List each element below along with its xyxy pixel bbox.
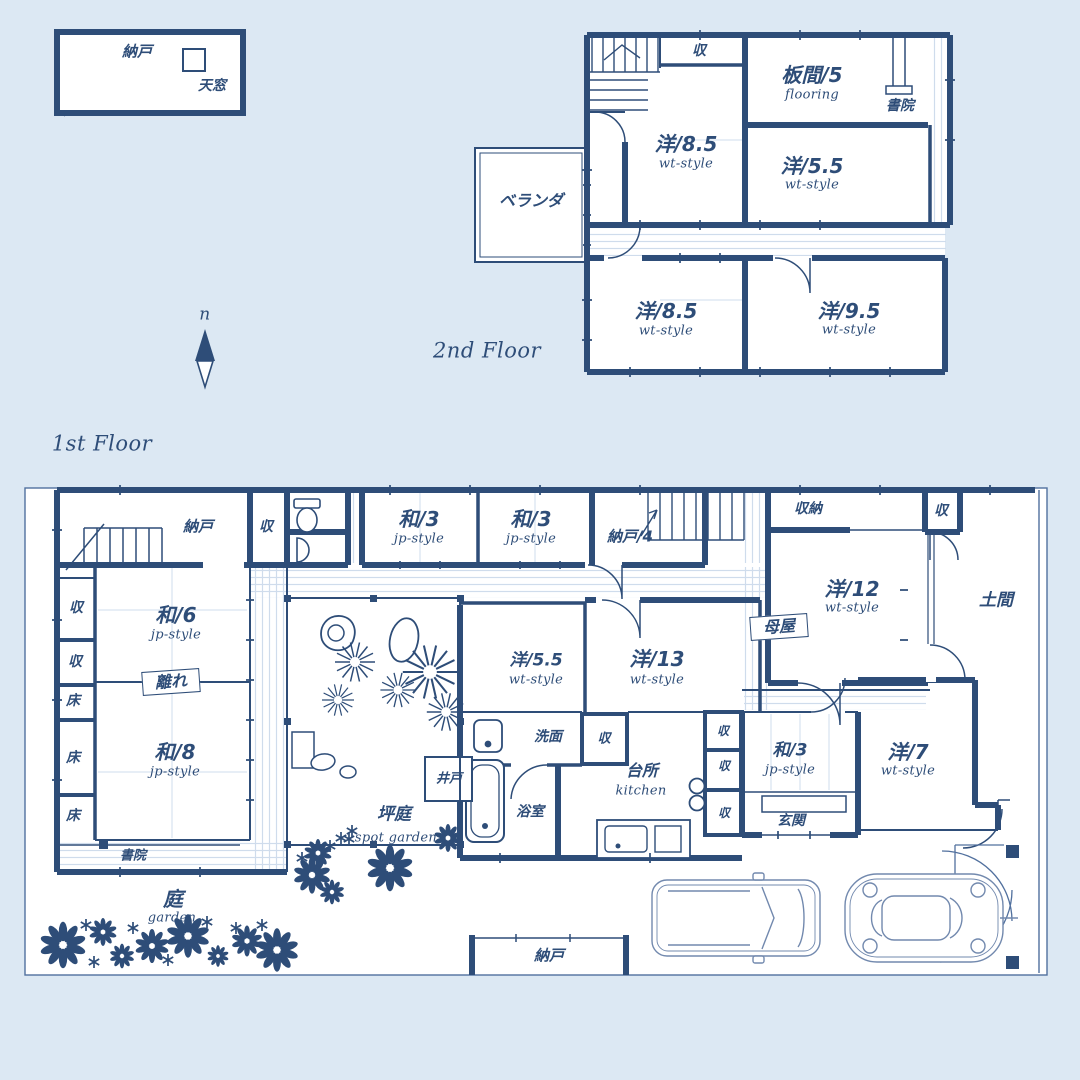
label-1f-wa8: 和/8: [154, 742, 195, 762]
label-2f-yo55: 洋/5.5: [781, 156, 844, 176]
floorplan-page: 納戸 天窓 n 収 板間/5 flooring 書院 洋/8.5 wt-styl…: [0, 0, 1080, 1080]
label-1f-wa3b: 和/3: [510, 509, 551, 529]
label-2f-yo85a: 洋/8.5: [655, 134, 718, 154]
label-1f-closet8: 収: [718, 807, 730, 819]
label-1f-yo12-sub: wt-style: [825, 602, 879, 615]
label-1f-yo7-sub: wt-style: [881, 765, 935, 778]
label-1f-yo55-sub: wt-style: [509, 674, 563, 687]
label-2f-yo85b: 洋/8.5: [635, 301, 698, 321]
label-1f-shoin: 書院: [120, 850, 146, 863]
label-1f-closet1: 収: [259, 520, 273, 534]
label-1f-toko2: 床: [66, 751, 80, 765]
car-van-icon: [652, 873, 820, 963]
washbasin-icon: [474, 720, 502, 752]
label-1f-nando-tl: 納戸: [183, 520, 213, 535]
label-1f-toko1: 床: [66, 694, 80, 708]
label-1f-wa3a: 和/3: [398, 509, 439, 529]
label-1f-genkan: 玄関: [777, 814, 805, 828]
label-1f-wa3a-sub: jp-style: [394, 533, 444, 546]
label-1f-closet2: 収: [934, 504, 948, 518]
floor1-title: 1st Floor: [52, 434, 152, 455]
label-1f-closet6: 収: [717, 725, 729, 737]
label-2f-itama-sub: flooring: [785, 89, 839, 102]
label-1f-wa6-sub: jp-style: [151, 629, 201, 642]
label-1f-doma: 土間: [979, 593, 1013, 610]
kitchen-counter-icon: [597, 820, 690, 858]
label-1f-nando-bottom: 納戸: [534, 949, 564, 964]
label-1f-hanare: 離れ: [141, 668, 201, 696]
label-2f-yo85b-sub: wt-style: [639, 325, 693, 338]
label-1f-daidokoro-sub: kitchen: [615, 785, 666, 798]
genkan-step: [762, 796, 846, 812]
floor2-title: 2nd Floor: [433, 341, 541, 362]
label-1f-closet3: 収: [69, 601, 83, 615]
label-1f-tsuboniwa: 坪庭: [377, 807, 411, 824]
legend-skylight-label: 天窓: [198, 79, 226, 93]
label-1f-wa8-sub: jp-style: [150, 766, 200, 779]
label-1f-wa6: 和/6: [155, 605, 196, 625]
label-2f-yo55-sub: wt-style: [785, 179, 839, 192]
label-1f-yo12: 洋/12: [824, 579, 879, 599]
label-2f-itama: 板間/5: [781, 65, 842, 85]
shoin-post: [99, 840, 108, 849]
label-1f-yo13-sub: wt-style: [630, 674, 684, 687]
label-1f-niwa-sub: garden: [148, 912, 196, 925]
label-1f-yokushitsu: 浴室: [516, 805, 544, 819]
label-2f-closet: 収: [692, 44, 706, 58]
label-2f-yo95-sub: wt-style: [822, 324, 876, 337]
label-1f-wa3c-sub: jp-style: [765, 764, 815, 777]
car-sports-icon: [845, 874, 1018, 962]
label-2f-yo85a-sub: wt-style: [659, 158, 713, 171]
label-1f-wa3b-sub: jp-style: [506, 533, 556, 546]
label-1f-nando4: 納戸/4: [607, 530, 653, 545]
label-1f-daidokoro: 台所: [626, 763, 658, 779]
label-1f-yo7: 洋/7: [887, 742, 928, 762]
label-1f-wa3c: 和/3: [772, 743, 807, 760]
label-1f-closet5: 収: [597, 733, 610, 746]
label-1f-shuno: 収納: [794, 502, 822, 516]
compass-north-label: n: [199, 307, 210, 324]
label-2f-shoin: 書院: [886, 99, 914, 113]
label-2f-veranda: ベランダ: [499, 193, 563, 209]
label-2f-yo95: 洋/9.5: [818, 301, 881, 321]
label-1f-ido: 井戸: [436, 773, 462, 786]
label-1f-omoya: 母屋: [749, 613, 809, 641]
label-1f-yo55: 洋/5.5: [509, 653, 562, 670]
label-1f-closet7: 収: [718, 760, 730, 772]
label-1f-closet4: 収: [68, 655, 82, 669]
label-1f-niwa: 庭: [163, 889, 183, 909]
door-gaps: [926, 644, 936, 682]
label-1f-tsuboniwa-sub: spot garden: [355, 832, 437, 845]
compass-icon: [195, 329, 215, 387]
legend-storage-label: 納戸: [122, 45, 152, 60]
label-1f-senmen: 洗面: [534, 730, 562, 744]
label-1f-yo13: 洋/13: [629, 649, 684, 669]
label-1f-toko3: 床: [66, 809, 80, 823]
